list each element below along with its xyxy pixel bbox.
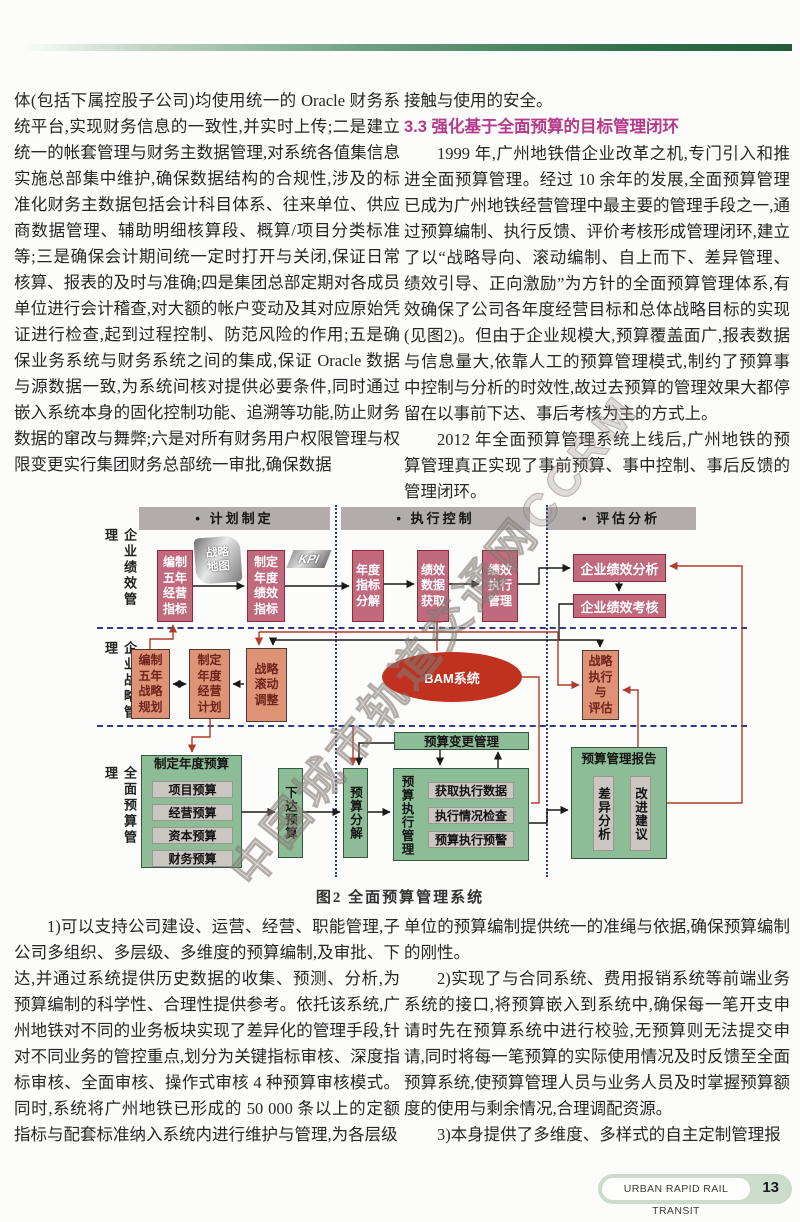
paragraph: 3)本身提供了多维度、多样式的自主定制管理报 <box>404 1122 790 1148</box>
budget-item: 财务预算 <box>152 850 233 867</box>
node-kpi-decomposition: 年度 指标 分解 <box>352 550 384 622</box>
node-bam-system: BAM系统 <box>382 652 522 702</box>
node-performance-review: 企业绩效考核 <box>573 594 666 618</box>
node-performance-analysis: 企业绩效分析 <box>573 554 666 582</box>
node-performance-data: 绩效 数据 获取 <box>417 550 449 622</box>
budget-exec-item: 执行情况检查 <box>428 807 514 824</box>
journal-name: URBAN RAPID RAIL TRANSIT <box>602 1178 750 1200</box>
node-budget-report: 预算管理报告 差异分析 改进建议 <box>571 747 667 859</box>
node-performance-execution: 绩效 执行 管理 <box>482 550 518 622</box>
bottom-right-column: 单位的预算编制提供统一的准绳与依据,确保预算编制的刚性。 2)实现了与合同系统、… <box>404 914 790 1148</box>
budget-item: 经营预算 <box>152 804 233 821</box>
node-strategy-execution-eval: 战略 执行 与 评估 <box>582 650 619 720</box>
paragraph: 1999 年,广州地铁借企业改革之机,专门引入和推进全面预算管理。经过 10 余… <box>404 141 790 427</box>
figure-caption: 图2 全面预算管理系统 <box>0 886 800 907</box>
node-annual-ops-plan: 制定 年度 经营 计划 <box>189 649 230 719</box>
budget-report-title: 预算管理报告 <box>572 751 666 768</box>
budget-exec-item: 获取执行数据 <box>428 782 514 799</box>
figure-budget-management-system: • 计划制定 • 执行控制 • 评估分析 企业绩效管理 企业战略管理 全面预算管… <box>95 500 795 885</box>
node-budget-decomposition: 预算分解 <box>343 768 368 858</box>
node-five-year-ops-kpi: 编制 五年 经营 指标 <box>157 550 193 622</box>
bottom-left-column: 1)可以支持公司建设、运营、经营、职能管理,子公司多组织、多层级、多维度的预算编… <box>14 914 400 1148</box>
node-issue-budget: 下达预算 <box>278 768 303 858</box>
node-budget-change: 预算变更管理 <box>394 732 529 750</box>
budget-item: 项目预算 <box>152 781 233 798</box>
node-improvement-suggestion: 改进建议 <box>630 776 651 851</box>
node-strategy-rolling-adjust: 战略 滚动 调整 <box>246 648 287 722</box>
paragraph: 接触与使用的安全。 <box>404 88 790 114</box>
footer-badge: URBAN RAPID RAIL TRANSIT 13 <box>598 1174 792 1204</box>
node-five-year-strategy: 编制 五年 战略 规划 <box>131 649 170 719</box>
paragraph: 2012 年全面预算管理系统上线后,广州地铁的预算管理真正实现了事前预算、事中控… <box>404 427 790 505</box>
header-rule <box>22 44 792 51</box>
paragraph: 体(包括下属控股子公司)均使用统一的 Oracle 财务系统平台,实现财务信息的… <box>14 88 400 478</box>
budget-execution-title: 预算执行管理 <box>396 773 418 858</box>
paragraph: 单位的预算编制提供统一的准绳与依据,确保预算编制的刚性。 <box>404 914 790 966</box>
node-kpi-tag: KPI <box>286 550 331 568</box>
budget-exec-item: 预算执行预警 <box>428 831 514 848</box>
budget-item: 资本预算 <box>152 827 233 844</box>
annual-budget-title: 制定年度预算 <box>142 756 241 773</box>
left-column: 体(包括下属控股子公司)均使用统一的 Oracle 财务系统平台,实现财务信息的… <box>14 88 400 478</box>
section-heading: 3.3 强化基于全面预算的目标管理闭环 <box>404 114 790 141</box>
node-annual-performance-kpi: 制定 年度 绩效 指标 <box>247 550 285 622</box>
paragraph: 2)实现了与合同系统、费用报销系统等前端业务系统的接口,将预算嵌入到系统中,确保… <box>404 966 790 1122</box>
right-column: 接触与使用的安全。 3.3 强化基于全面预算的目标管理闭环 1999 年,广州地… <box>404 88 790 505</box>
paragraph: 1)可以支持公司建设、运营、经营、职能管理,子公司多组织、多层级、多维度的预算编… <box>14 914 400 1148</box>
node-strategy-map: 战略 地图 <box>193 535 242 584</box>
node-budget-execution: 预算执行管理 获取执行数据 执行情况检查 预算执行预警 <box>393 768 529 861</box>
node-variance-analysis: 差异分析 <box>593 776 614 851</box>
page-number: 13 <box>762 1179 779 1196</box>
node-annual-budget: 制定年度预算 项目预算 经营预算 资本预算 财务预算 <box>141 755 242 868</box>
